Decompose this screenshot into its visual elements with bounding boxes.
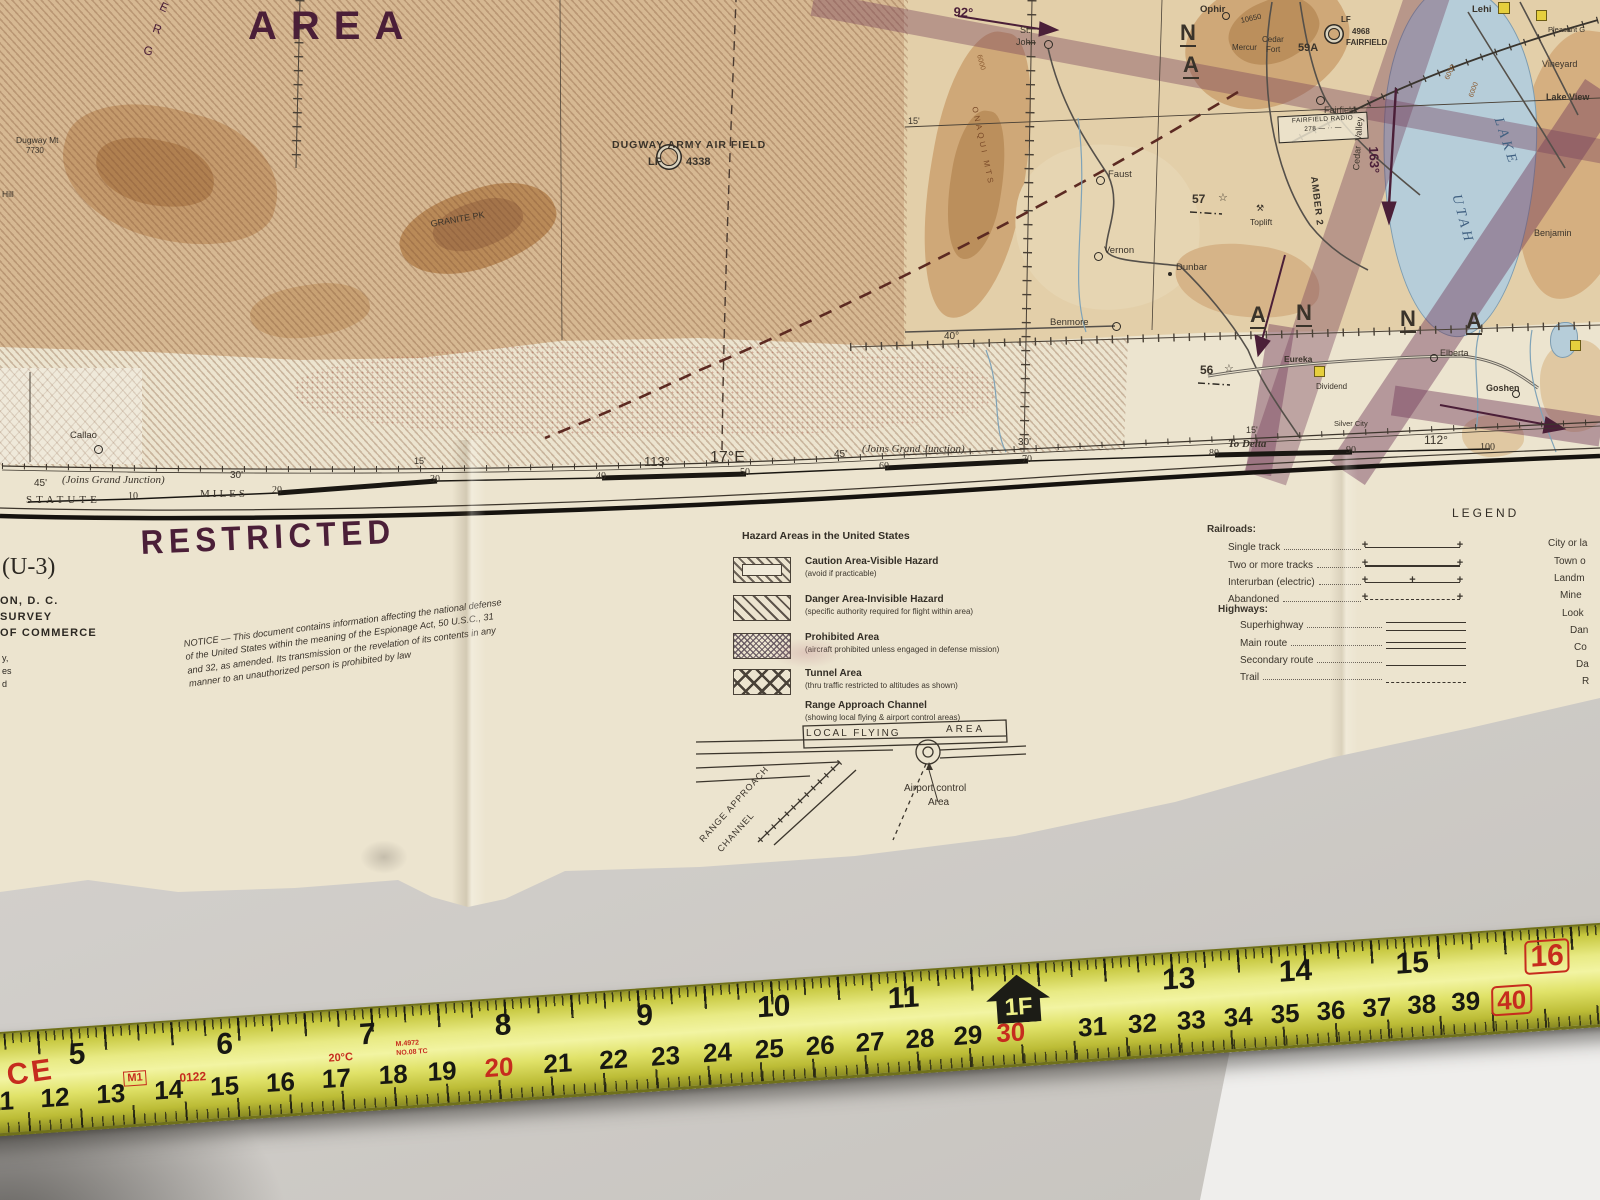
leader-dots bbox=[1263, 679, 1382, 680]
airway-a-3: A bbox=[1466, 310, 1482, 335]
scale-30: 30 bbox=[430, 475, 440, 485]
tape-cm-number: 20 bbox=[484, 1053, 513, 1081]
scale-statute: STATUTE bbox=[26, 495, 101, 506]
tape-cm-number: 23 bbox=[651, 1042, 680, 1070]
st-john-1: St. bbox=[1020, 26, 1031, 35]
fairfield-59a: 59A bbox=[1298, 43, 1318, 54]
smudge bbox=[770, 638, 844, 668]
airway-a-2: A bbox=[1250, 304, 1266, 329]
m1-class-mark: M1 bbox=[123, 1070, 147, 1087]
town-square-santaquin bbox=[1570, 340, 1581, 351]
publisher-line: OF COMMERCE bbox=[0, 627, 97, 639]
benjamin: Benjamin bbox=[1534, 229, 1572, 238]
fine-print-1: M.4972 bbox=[395, 1039, 419, 1048]
hazard-item: Range Approach Channel(showing local fly… bbox=[733, 700, 1063, 734]
mercur: Mercur bbox=[1232, 44, 1257, 52]
airfield-symbol-fairfield bbox=[1328, 28, 1340, 40]
tape-inch-number: 10 bbox=[757, 991, 791, 1023]
legend-label: Secondary route bbox=[1240, 655, 1313, 666]
diagram-airport-control-1: Airport control bbox=[904, 784, 966, 794]
parallel-15: 15' bbox=[908, 117, 920, 126]
fairfield-lf: LF bbox=[1341, 16, 1351, 24]
scale-miles: MILES bbox=[200, 489, 248, 500]
neat-15-a: 15' bbox=[414, 457, 426, 466]
tape-cm-number: 22 bbox=[599, 1045, 628, 1073]
lehi: Lehi bbox=[1472, 5, 1492, 15]
legend-section-title: Railroads: bbox=[1207, 524, 1307, 535]
airway-57: 57 bbox=[1192, 193, 1205, 205]
tape-inch-number: 8 bbox=[494, 1010, 511, 1041]
tape-cm-number: 26 bbox=[806, 1031, 835, 1059]
tape-cm-number: 37 bbox=[1362, 993, 1391, 1021]
st-john-2: John bbox=[1016, 38, 1036, 47]
vineyard: Vineyard bbox=[1542, 60, 1577, 69]
publisher-line: SURVEY bbox=[0, 611, 52, 623]
railroad-symbol: ++ bbox=[1365, 593, 1460, 605]
text-fragment: y, bbox=[2, 653, 8, 663]
legend-label: Highways: bbox=[1218, 604, 1268, 615]
isogonic-17e: 17°E bbox=[710, 450, 745, 466]
tape-cm-number: 36 bbox=[1316, 996, 1345, 1024]
cedar-fort-2: Fort bbox=[1266, 46, 1280, 54]
tape-inch-number: 13 bbox=[1162, 964, 1196, 996]
neat-15-b: 15' bbox=[1246, 426, 1258, 435]
text-fragment: d bbox=[2, 679, 7, 689]
cedar-fort-1: Cedar bbox=[1262, 36, 1284, 44]
star-56: ☆ bbox=[1224, 363, 1234, 374]
crossing-tick: + bbox=[1362, 592, 1368, 603]
hazard-item: Tunnel Area(thru traffic restricted to a… bbox=[733, 668, 1063, 702]
parallel-40: 40° bbox=[944, 332, 959, 342]
airway-a-1: A bbox=[1183, 54, 1199, 79]
neat-30-b: 30' bbox=[1018, 438, 1031, 448]
tape-cm-number: 39 bbox=[1451, 987, 1480, 1015]
legend-right-item: Co bbox=[1574, 642, 1587, 653]
railroad-symbol: ++ bbox=[1365, 541, 1460, 553]
airway-n-3: N bbox=[1400, 308, 1416, 333]
cert-number: 0122 bbox=[179, 1070, 206, 1084]
crossing-tick: + bbox=[1409, 575, 1415, 586]
star-57: ☆ bbox=[1218, 192, 1228, 203]
dunbar: Dunbar bbox=[1176, 263, 1207, 273]
legend-label: Superhighway bbox=[1240, 620, 1303, 631]
hazard-sublabel: (specific authority required for flight … bbox=[805, 607, 973, 616]
hazard-item: Danger Area-Invisible Hazard(specific au… bbox=[733, 594, 1063, 628]
tape-cm-number: 35 bbox=[1270, 1000, 1299, 1028]
tape-cm-number: 33 bbox=[1177, 1006, 1206, 1034]
scale-10: 10 bbox=[128, 492, 138, 502]
text-fragment: es bbox=[2, 666, 12, 676]
tape-cm-number: 29 bbox=[953, 1021, 982, 1049]
pleasant-g: Pleasant G bbox=[1548, 26, 1585, 34]
legend-right-item: Mine bbox=[1560, 590, 1582, 601]
railroad-symbol: +++ bbox=[1365, 576, 1460, 588]
joins-grand-junction-2: (Joins Grand Junction) bbox=[862, 444, 965, 455]
tape-inch-number: 14 bbox=[1279, 956, 1313, 988]
silver-city: Silver City bbox=[1334, 420, 1368, 428]
legend-label: Main route bbox=[1240, 638, 1287, 649]
neat-45-b: 45' bbox=[834, 450, 847, 460]
goshen: Goshen bbox=[1486, 384, 1520, 393]
town-circle-fairfield bbox=[1316, 96, 1325, 105]
hazard-label: Tunnel Area bbox=[805, 668, 862, 679]
highway-symbol bbox=[1386, 622, 1466, 631]
diagram-airport-control-2: Area bbox=[928, 798, 949, 808]
tape-cm-number: 16 bbox=[266, 1068, 295, 1096]
fairfield-aw: FAIRFIELD bbox=[1346, 39, 1387, 47]
hazard-sublabel: (showing local flying & airport control … bbox=[805, 713, 960, 722]
tape-cm-number: 15 bbox=[210, 1072, 239, 1100]
tape-inch-number: 16 bbox=[1524, 938, 1570, 975]
hazard-label: Danger Area-Invisible Hazard bbox=[805, 594, 944, 605]
toplift: Toplift bbox=[1250, 218, 1272, 227]
legend-right-item: Dan bbox=[1570, 625, 1588, 636]
tape-cm-number: 17 bbox=[322, 1064, 351, 1092]
legend-right-item: Landm bbox=[1554, 573, 1585, 584]
crossing-tick: + bbox=[1457, 592, 1463, 603]
tape-inch-number: 6 bbox=[216, 1029, 233, 1060]
legend-title: LEGEND bbox=[1452, 506, 1519, 520]
tape-cm-number: 40 bbox=[1491, 984, 1532, 1017]
town-square-eureka bbox=[1314, 366, 1325, 377]
airway-n-2: N bbox=[1296, 302, 1312, 327]
crossing-tick: + bbox=[1457, 540, 1463, 551]
tape-cm-number: 21 bbox=[543, 1049, 572, 1077]
tape-inch-number: 15 bbox=[1395, 948, 1429, 980]
hazard-swatch bbox=[733, 595, 791, 621]
temperature-mark: 20°C bbox=[328, 1052, 353, 1065]
airway-56: 56 bbox=[1200, 364, 1213, 376]
chart-number: (U-3) bbox=[2, 554, 55, 581]
town-circle-callao bbox=[94, 445, 103, 454]
legend-label: Interurban (electric) bbox=[1228, 577, 1315, 588]
scale-50: 50 bbox=[740, 468, 750, 478]
hazard-legend-title: Hazard Areas in the United States bbox=[742, 530, 910, 542]
airway-n-1: N bbox=[1180, 22, 1196, 47]
photo-scene: FAIRFIELD RADIO 278 — ·· — AREAERGDUGWAY… bbox=[0, 0, 1600, 1200]
neat-30-a: 30' bbox=[230, 471, 243, 481]
scale-70: 70 bbox=[1022, 455, 1032, 465]
crossing-tick: + bbox=[1362, 575, 1368, 586]
meridian-113: 113° bbox=[644, 455, 670, 468]
dugway-airfield: DUGWAY ARMY AIR FIELD bbox=[612, 140, 766, 151]
town-circle-faust bbox=[1096, 176, 1105, 185]
tape-inch-number: 9 bbox=[636, 1000, 653, 1031]
tape-cm-number: 24 bbox=[703, 1038, 732, 1066]
elberta: Elberta bbox=[1440, 349, 1469, 358]
dugway-lf: LF bbox=[648, 157, 661, 168]
legend-right-item: Look bbox=[1562, 608, 1584, 619]
area-title: AREA bbox=[248, 6, 417, 46]
neat-45-a: 45' bbox=[34, 479, 47, 489]
fold-crease bbox=[452, 440, 486, 908]
vernon: Vernon bbox=[1104, 246, 1134, 256]
tape-inch-number: 11 bbox=[888, 982, 920, 1014]
dugway-mt-elev: 7730 bbox=[26, 147, 44, 155]
hazard-swatch bbox=[733, 669, 791, 695]
callao: Callao bbox=[70, 431, 97, 441]
benmore: Benmore bbox=[1050, 318, 1089, 328]
legend-right-item: City or la bbox=[1548, 538, 1587, 549]
tape-cm-number: 25 bbox=[755, 1035, 784, 1063]
hill-label: Hill bbox=[2, 190, 14, 199]
town-circle-st-john bbox=[1044, 40, 1053, 49]
town-dot-dunbar bbox=[1168, 272, 1172, 276]
legend-label: Trail bbox=[1240, 672, 1259, 683]
town-circle-benmore bbox=[1112, 322, 1121, 331]
scale-20: 20 bbox=[272, 486, 282, 496]
highway-symbol bbox=[1386, 682, 1466, 683]
smudge bbox=[360, 840, 408, 874]
town-circle-vernon bbox=[1094, 252, 1103, 261]
tape-cm-number: 32 bbox=[1128, 1009, 1157, 1037]
scale-60: 60 bbox=[879, 462, 889, 472]
fold-crease bbox=[1330, 455, 1358, 765]
legend-label: Railroads: bbox=[1207, 524, 1256, 535]
map-sheet: FAIRFIELD RADIO 278 — ·· — AREAERGDUGWAY… bbox=[0, 0, 1600, 912]
hazard-item: Caution Area-Visible Hazard(avoid if pra… bbox=[733, 556, 1063, 590]
hazard-swatch bbox=[733, 557, 791, 583]
legend-label: Single track bbox=[1228, 542, 1280, 553]
hazard-label: Caution Area-Visible Hazard bbox=[805, 556, 938, 567]
tape-cm-number: 28 bbox=[905, 1024, 934, 1052]
crossing-tick: + bbox=[1457, 575, 1463, 586]
tape-inch-number: 5 bbox=[68, 1039, 85, 1070]
crossing-tick: + bbox=[1457, 558, 1463, 569]
town-square-pleasant bbox=[1536, 10, 1547, 21]
crossing-tick: + bbox=[1362, 540, 1368, 551]
tape-cm-number: 12 bbox=[40, 1083, 69, 1111]
airway-163: 163° bbox=[1367, 146, 1381, 174]
railroad-symbol: ++ bbox=[1365, 559, 1460, 571]
crossing-tick: + bbox=[1362, 558, 1368, 569]
faust: Faust bbox=[1108, 170, 1132, 180]
hazard-label: Range Approach Channel bbox=[805, 700, 927, 711]
legend-right-item: R bbox=[1582, 676, 1589, 687]
publisher-line: ON, D. C. bbox=[0, 595, 58, 607]
tape-cm-number: 19 bbox=[427, 1057, 456, 1085]
joins-grand-junction-1: (Joins Grand Junction) bbox=[62, 475, 165, 486]
scale-80: 80 bbox=[1209, 449, 1219, 459]
tape-cm-number: 27 bbox=[855, 1028, 884, 1056]
fairfield-freq: 4968 bbox=[1352, 28, 1370, 36]
legend-right-item: Da bbox=[1576, 659, 1589, 670]
town-circle-elberta bbox=[1430, 354, 1438, 362]
meridian-112: 112° bbox=[1424, 434, 1448, 446]
fairfield-town: Fairfield bbox=[1324, 106, 1356, 115]
tape-cm-number: 18 bbox=[379, 1060, 408, 1088]
highway-symbol bbox=[1386, 642, 1466, 649]
tape-cm-number: 38 bbox=[1407, 990, 1436, 1018]
airway-92: 92° bbox=[953, 5, 974, 19]
highway-symbol bbox=[1386, 665, 1466, 666]
hazard-sublabel: (avoid if practicable) bbox=[805, 569, 877, 578]
hazard-sublabel: (thru traffic restricted to altitudes as… bbox=[805, 681, 958, 690]
mine-icon: ⚒ bbox=[1256, 205, 1264, 214]
town-square-l ehi bbox=[1498, 2, 1510, 14]
dividend: Dividend bbox=[1316, 383, 1347, 391]
dugway-mt: Dugway Mt bbox=[16, 136, 59, 145]
tape-cm-number: 34 bbox=[1224, 1003, 1253, 1031]
legend-section-title: Highways: bbox=[1218, 604, 1318, 615]
dugway-elev: 4338 bbox=[686, 157, 710, 168]
tape-cm-number: 31 bbox=[1078, 1013, 1107, 1041]
scale-100: 100 bbox=[1480, 443, 1495, 453]
ce-mark: CE bbox=[5, 1055, 56, 1091]
legend-right-item: Town o bbox=[1554, 556, 1586, 567]
legend-label: Two or more tracks bbox=[1228, 560, 1313, 571]
ophir: Ophir bbox=[1200, 5, 1225, 15]
eureka: Eureka bbox=[1284, 355, 1312, 364]
to-delta: To Delta bbox=[1228, 439, 1266, 450]
tape-inch-number: 7 bbox=[359, 1019, 376, 1050]
tape-cm-number: 13 bbox=[96, 1080, 125, 1108]
fine-print-2: NO.08 TC bbox=[396, 1048, 428, 1057]
scale-40: 40 bbox=[596, 472, 606, 482]
lake-view: Lake View bbox=[1546, 93, 1589, 102]
